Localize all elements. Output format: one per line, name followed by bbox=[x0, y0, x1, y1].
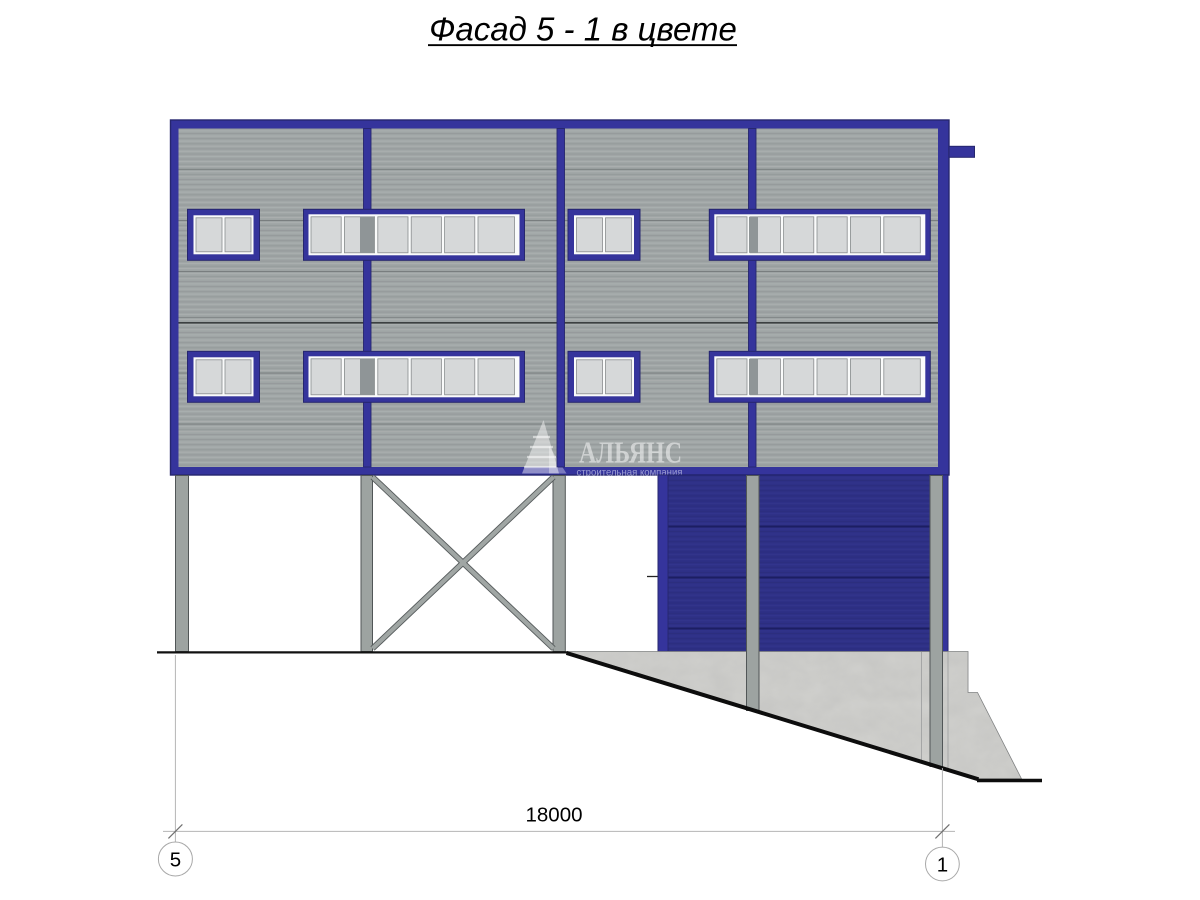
svg-text:5: 5 bbox=[170, 848, 181, 871]
svg-text:АЛЬЯНС: АЛЬЯНС bbox=[579, 435, 682, 470]
svg-text:1: 1 bbox=[937, 853, 948, 876]
svg-text:18000: 18000 bbox=[525, 804, 582, 827]
svg-text:Фасад 5 - 1 в цвете: Фасад 5 - 1 в цвете bbox=[429, 11, 737, 48]
